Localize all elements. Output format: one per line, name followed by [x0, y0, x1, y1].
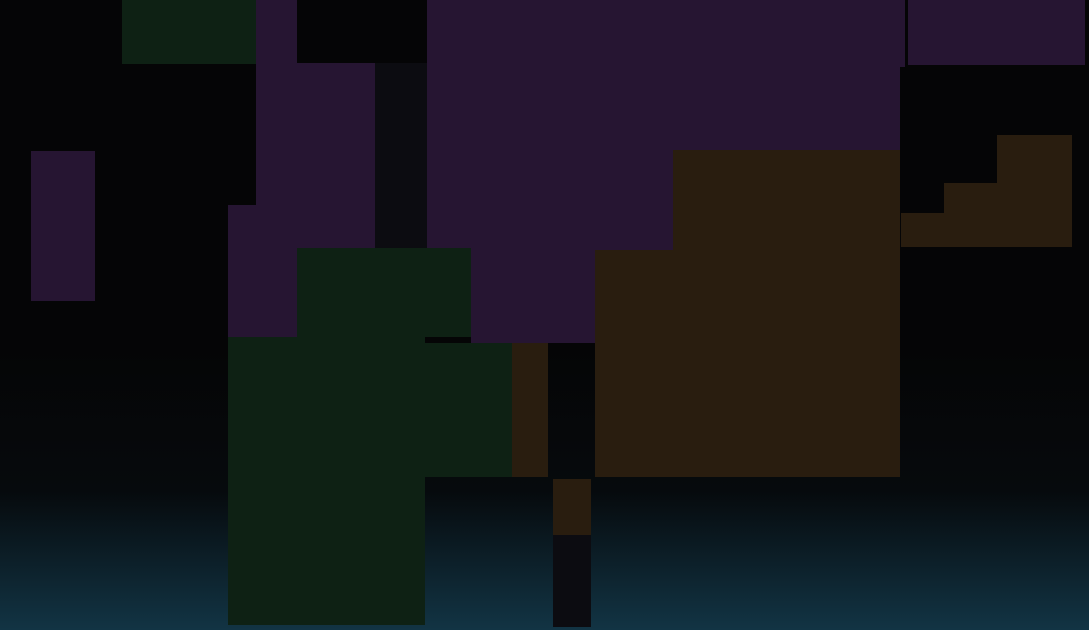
green-room-east [425, 343, 512, 477]
purple-corridor-a-south [297, 204, 375, 248]
stair-corridor-upper [553, 479, 591, 535]
green-room-topleft [122, 0, 258, 64]
green-room-mid [297, 248, 471, 337]
purple-room-player [31, 151, 95, 301]
purple-room-a [297, 63, 375, 204]
dark-room-strip [375, 63, 427, 248]
purple-area-northeast [673, 67, 900, 150]
purple-room-center [471, 205, 595, 343]
game-map-screen [0, 0, 1089, 630]
brown-cave-north [673, 150, 900, 252]
brown-room-main [595, 250, 900, 477]
purple-nook-center [595, 205, 675, 250]
purple-hall-main [471, 67, 673, 205]
purple-room-topright [908, 0, 1085, 65]
purple-hall-band [471, 0, 905, 67]
green-room-south [228, 530, 425, 625]
level-map [0, 0, 1089, 630]
purple-room-west [228, 205, 297, 337]
purple-strip-center [427, 0, 471, 248]
brown-nook-cursor [512, 343, 548, 477]
stair-corridor-lower [553, 535, 591, 627]
purple-strip-west [256, 0, 297, 205]
green-room-large [228, 337, 425, 530]
